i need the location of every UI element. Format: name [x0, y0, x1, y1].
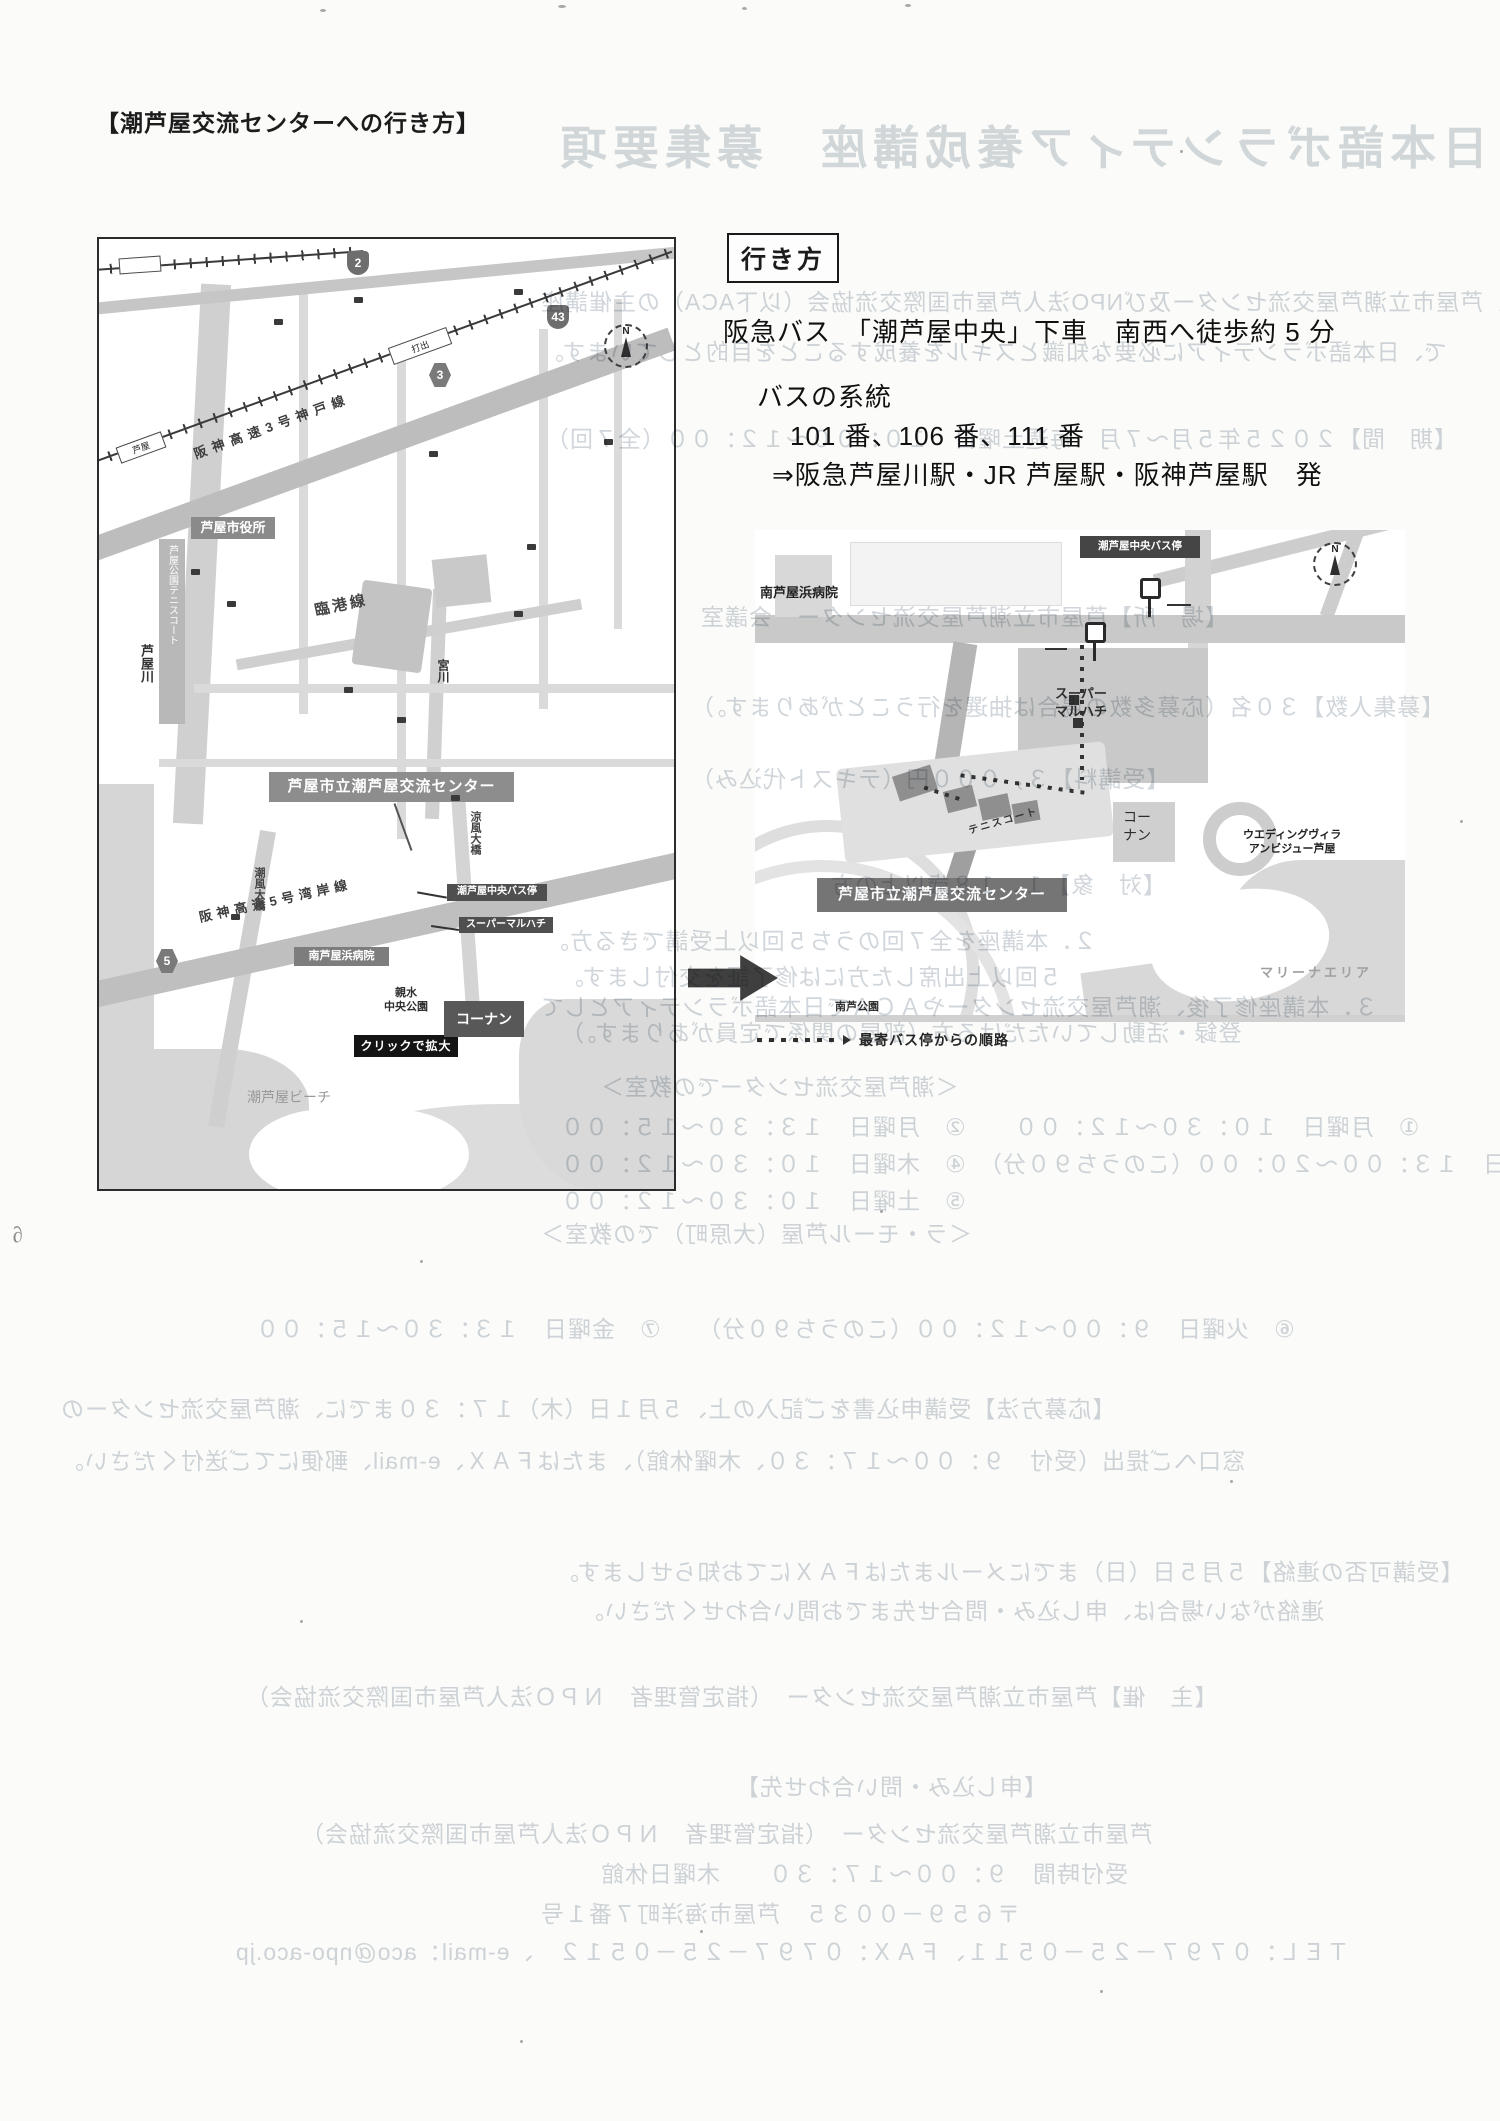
bus-stop-label: 潮芦屋中央バス停	[447, 884, 547, 901]
walking-route-dots	[1080, 645, 1084, 780]
bleedthrough-line: 【受講可否の連絡】５月５日（日）までにメールまたはＦＡＸにてお知らせします。	[555, 1553, 1464, 1587]
scan-speck	[320, 9, 326, 12]
directions-line-stations: ⇒阪急芦屋川駅・JR 芦屋駅・阪神芦屋駅 発	[772, 455, 1323, 492]
ashiya-park-strip: 芦屋公園テニスコート	[159, 539, 185, 724]
water-park-line2: 中央公園	[384, 1001, 428, 1015]
bleedthrough-line: 〒６５９－００３５ 芦屋市海洋町７番１号	[540, 1895, 1020, 1929]
route-legend: 最寄バス停からの順路	[757, 1030, 1009, 1050]
compass-n-label: N	[622, 327, 629, 337]
kohnan-line1: コー	[1123, 808, 1175, 826]
overview-map: 芦屋公園テニスコート 2 芦屋 打出 阪神高速3号神戸線 43 3 阪神高速5号…	[97, 237, 676, 1191]
bleedthrough-line: ＜ラ・モール芦屋（大原町）での教室＞	[540, 1215, 972, 1249]
scan-speck	[558, 5, 566, 8]
beach-label: 潮芦屋ビーチ	[247, 1087, 331, 1107]
bus-mark	[514, 289, 523, 295]
bus-mark	[604, 439, 613, 445]
wedding-line1: ウエディングヴィラ	[1243, 828, 1341, 842]
shiokaze-bridge-label: 潮風大橋	[251, 867, 267, 911]
exchange-center-label: 芦屋市立潮芦屋交流センター	[817, 878, 1067, 912]
bus-mark	[514, 611, 523, 617]
legend-arrow-icon	[843, 1035, 851, 1045]
page-title: 【潮芦屋交流センターへの行き方】	[96, 104, 480, 138]
signal-mark	[1069, 695, 1079, 705]
bus-stop-label: 潮芦屋中央バス停	[1080, 536, 1200, 558]
bus-mark	[231, 914, 240, 920]
kohnan-label: コーナン	[444, 1001, 524, 1037]
bus-mark	[429, 451, 438, 457]
bleedthrough-line: 【申し込み・問い合わせ先】	[735, 1768, 1047, 1802]
scan-speck	[420, 1260, 423, 1263]
directions-line-numbers: 101 番、106 番、111 番	[790, 416, 1085, 453]
supermarket-label: スーパーマルハチ	[459, 917, 553, 933]
bus-mark	[227, 601, 236, 607]
scan-speck	[1180, 150, 1183, 153]
bleedthrough-line: ① 月曜日 １０：３０～１２：００ ② 月曜日 １３：３０～１５：００	[560, 1108, 1419, 1142]
scan-speck	[742, 7, 747, 10]
bleedthrough-line: 芦屋市立潮芦屋交流センター （指定管理者 ＮＰＯ法人芦屋市国際交流協会）	[300, 1815, 1153, 1849]
click-to-enlarge-label: クリックで拡大	[354, 1035, 458, 1057]
bleedthrough-line: 【主 催】芦屋市立潮芦屋交流センター （指定管理者 ＮＰＯ法人芦屋市国際交流協会…	[245, 1678, 1218, 1712]
wedding-villa-label: ウエディングヴィラ アンビジュー芦屋	[1243, 828, 1341, 857]
bus-mark	[527, 544, 536, 550]
marina-area-label: マリーナエリア	[1260, 962, 1372, 981]
stray-pen-mark: ∂	[9, 1221, 25, 1249]
directions-box-label: 行き方	[727, 233, 839, 283]
hospital-label: 南芦屋浜病院	[760, 582, 838, 601]
scan-speck	[700, 1930, 703, 1933]
station-ashiya: 芦屋	[116, 431, 167, 463]
bus-mark	[191, 569, 200, 575]
crossing-mark	[1167, 604, 1191, 606]
bottom-road	[755, 1015, 1405, 1022]
compass-needle-icon	[1330, 555, 1340, 575]
bleedthrough-line: ⑥ 火曜日 ９：００～１２：００（このうち９０分） ⑦ 金曜日 １３：３０～１５…	[255, 1310, 1295, 1344]
legend-dots-icon	[757, 1038, 835, 1042]
hospital-label: 南芦屋浜病院	[294, 947, 389, 966]
park-block	[432, 554, 492, 607]
station-box	[118, 256, 161, 275]
bleedthrough-line: 【応募方法】受講申込書をご記入の上、５月１日（木）１７：３０までに、潮芦屋交流セ…	[60, 1390, 1115, 1424]
suzukaze-bridge-label: 涼風大橋	[467, 811, 483, 855]
route43-shield: 43	[547, 305, 569, 329]
bus-stop-icon	[1085, 622, 1106, 661]
directions-line-bus: 阪急バス 「潮芦屋中央」下車 南西へ徒歩約 5 分	[723, 312, 1336, 349]
scan-speck	[300, 1620, 303, 1623]
city-block	[850, 542, 1062, 606]
leader-line	[417, 891, 447, 898]
marina-basin	[519, 999, 674, 1189]
scan-speck	[520, 2040, 523, 2043]
compass-needle-icon	[621, 337, 631, 357]
road	[194, 684, 674, 693]
scanned-document-page: 日本語ボランティア養成講座 募集要項 この講座は、芦屋市立潮芦屋交流センター及び…	[0, 0, 1500, 2121]
water-park-label: 親水 中央公園	[384, 987, 428, 1015]
bleedthrough-line: 受付時間 ９：００～１７：３０ 木曜日休館	[600, 1855, 1128, 1889]
tennis-court-label: 芦屋公園テニスコート	[165, 545, 180, 645]
route43-road	[97, 328, 676, 563]
compass-icon: N	[604, 324, 648, 368]
miya-river-label: 宮川	[435, 659, 452, 683]
scan-speck	[880, 1210, 883, 1213]
wedding-line2: アンビジュー芦屋	[1243, 842, 1341, 856]
directions-line-systems: バスの系統	[757, 377, 892, 414]
park-label: 南芦公園	[835, 998, 879, 1014]
bus-stop-icon	[1140, 578, 1161, 617]
bus-mark	[354, 297, 363, 303]
water-park-line1: 親水	[384, 987, 428, 1001]
bleedthrough-line: ＴＥＬ：０７９７－２５－０５１１、ＦＡＸ：０７９７－２５－０５１２ 、e-mai…	[235, 1933, 1349, 1967]
road	[159, 759, 674, 767]
route2-shield: 2	[347, 251, 369, 275]
bus-mark	[397, 717, 406, 723]
scan-speck	[1100, 1990, 1103, 1993]
bus-mark	[274, 319, 283, 325]
signal-mark	[1073, 718, 1083, 728]
bus-mark	[451, 795, 460, 801]
kohnan-line2: ナン	[1123, 826, 1175, 844]
main-road	[755, 615, 1405, 643]
kohnan-block: コー ナン	[1113, 802, 1175, 862]
beach-curve	[249, 1109, 469, 1191]
compass-n-label: N	[1331, 545, 1338, 555]
bleedthrough-title: 日本語ボランティア養成講座 募集要項	[555, 112, 1488, 178]
exchange-center-label: 芦屋市立潮芦屋交流センター	[269, 772, 514, 802]
bleedthrough-line: 連絡がない場合は、申し込み・問合せ先までお問い合わせください。	[580, 1592, 1324, 1626]
bus-mark	[344, 687, 353, 693]
scan-speck	[905, 4, 911, 7]
compass-icon: N	[1313, 542, 1357, 586]
city-hall-label: 芦屋市役所	[191, 517, 275, 539]
scan-speck	[1460, 820, 1463, 823]
legend-text: 最寄バス停からの順路	[859, 1030, 1009, 1050]
scan-speck	[1230, 1480, 1233, 1483]
bleedthrough-line: ③ 火曜日 １３：００～２０：００（このうち９０分） ④ 木曜日 １０：３０～１…	[560, 1145, 1500, 1179]
detail-map: コー ナン 潮芦屋中央バス停 南芦屋浜病院 スーパー マルハチ テニスコート 芦…	[755, 530, 1405, 1022]
crossing-mark	[1045, 648, 1067, 650]
ashiya-river-label: 芦屋川	[137, 644, 156, 683]
bleedthrough-line: 窓口へご提出（受付 ９：００～１７：３０、木曜休館）、またはＦＡＸ、e-mail…	[60, 1442, 1245, 1476]
